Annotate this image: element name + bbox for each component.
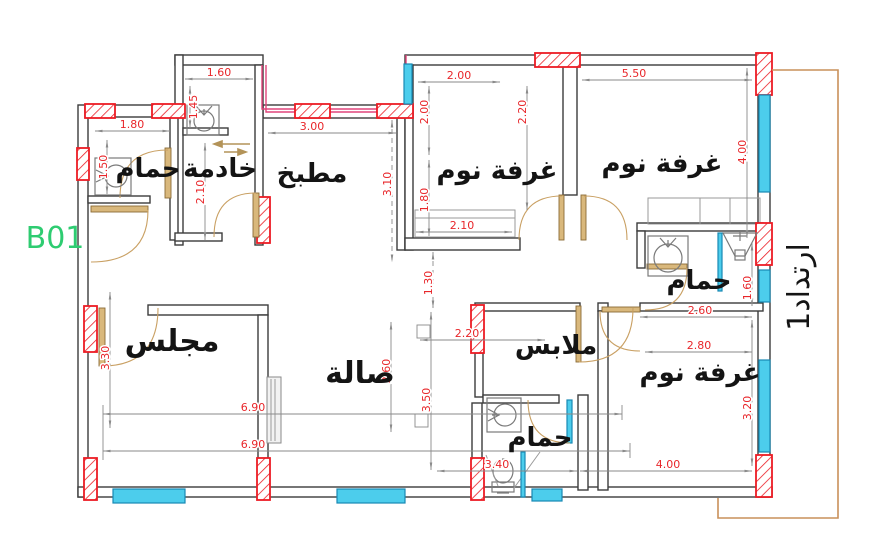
- wardrobe-bed-right: [648, 198, 760, 224]
- dim-bed-top-wardrobe: 2.10: [450, 219, 475, 232]
- dim-closet-width: 2.20: [455, 327, 480, 340]
- dim-plan-width-b: 6.90: [241, 438, 266, 451]
- dim-corridor-gap: 1.30: [422, 271, 435, 296]
- dim-bath-tl-height: 1.50: [97, 155, 110, 180]
- room-label-bedroom-top: غرفة نوم: [437, 156, 558, 186]
- sliding-unit-majlis: [267, 377, 281, 443]
- setback-boundary-line: [718, 70, 838, 518]
- dim-bath-bottom-width: 3.40: [485, 458, 510, 471]
- dim-bed-top-win: 2.00: [447, 69, 472, 82]
- dim-kitchen-width: 3.00: [300, 120, 325, 133]
- dim-hall-b: 3.50: [420, 388, 433, 413]
- dim-bed-top-left-h: 2.00: [418, 100, 431, 125]
- room-label-maid: خادمة: [183, 154, 257, 184]
- floor-plan-screenshot: 1.80 1.50 1.60 1.45 2.10 3.00 3.10 2.00 …: [0, 0, 890, 557]
- shower-glass-bath-bottom: [521, 452, 525, 497]
- dim-bed-top-right-h: 2.20: [516, 100, 529, 125]
- room-label-hall: صالة: [325, 356, 395, 391]
- unit-label: B01: [26, 221, 85, 256]
- room-label-bath-bottom: حمام: [508, 423, 573, 453]
- dim-bath-tl-width: 1.80: [120, 118, 145, 131]
- door-bedroom-right: [581, 195, 627, 240]
- dim-bed-top-lower-h: 1.80: [418, 188, 431, 213]
- room-label-bedroom-right: غرفة نوم: [602, 149, 723, 179]
- dim-bed-right-width: 5.50: [622, 67, 647, 80]
- dim-bed-br-mid: 2.80: [687, 339, 712, 352]
- dim-bed-br-height: 3.20: [741, 396, 754, 421]
- dim-bed-right-height: 4.00: [736, 140, 749, 165]
- dim-maid-wc-width: 1.60: [207, 66, 232, 79]
- dim-bed-br-width: 4.00: [656, 458, 681, 471]
- setback-label: ارتداد1: [782, 243, 817, 331]
- door-entry: [91, 206, 148, 262]
- room-label-kitchen: مطبخ: [277, 159, 348, 189]
- door-maid: [214, 193, 259, 237]
- dim-maid-wc-height: 1.45: [187, 95, 200, 120]
- dim-kitchen-height: 3.10: [381, 172, 394, 197]
- room-label-closet: ملابس: [515, 331, 597, 361]
- room-label-bedroom-bottom-right: غرفة نوم: [640, 358, 761, 388]
- appliance-arrows-maid: [214, 141, 250, 155]
- wardrobes: [267, 198, 760, 443]
- room-label-bath-right: حمام: [667, 266, 732, 296]
- room-label-majlis: مجلس: [125, 324, 220, 359]
- room-label-bath-top-left: حمام: [116, 154, 181, 184]
- dim-plan-width-a: 6.90: [241, 401, 266, 414]
- dim-bed-br-top: 2.60: [688, 304, 713, 317]
- floor-plan-canvas: 1.80 1.50 1.60 1.45 2.10 3.00 3.10 2.00 …: [0, 0, 890, 557]
- dim-bath-right-height: 1.60: [741, 276, 754, 301]
- door-bedroom-top: [519, 195, 564, 240]
- dim-majlis-height: 3.30: [99, 346, 112, 371]
- room-labels: حمام خادمة مطبخ غرفة نوم غرفة نوم حمام غ…: [116, 149, 761, 453]
